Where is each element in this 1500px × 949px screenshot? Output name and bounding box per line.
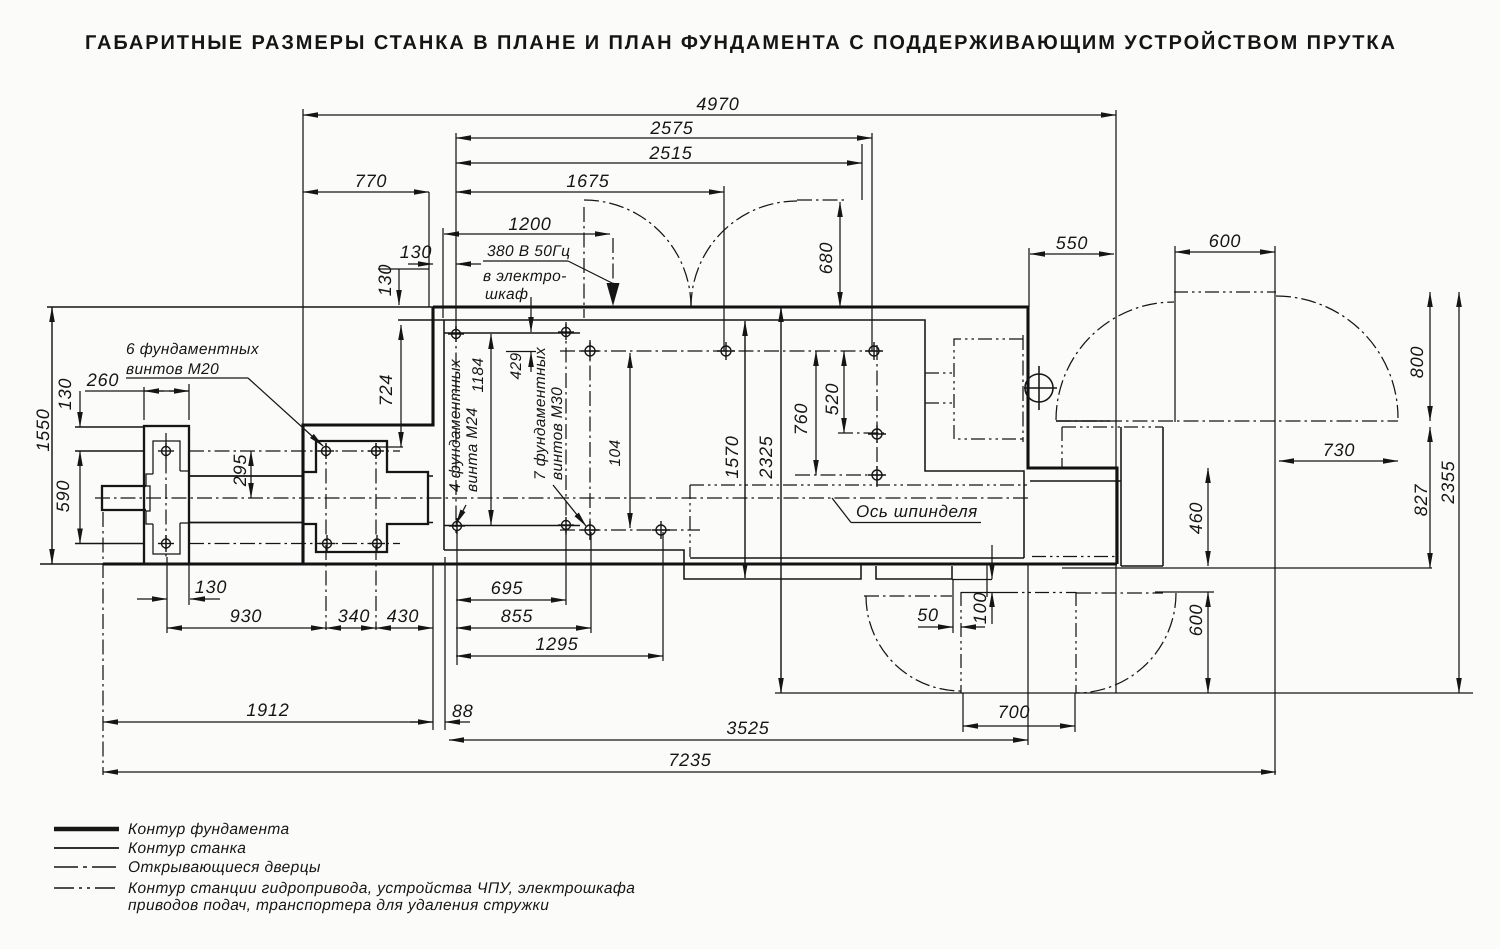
svg-text:Контур станка: Контур станка xyxy=(128,840,246,857)
svg-text:1184: 1184 xyxy=(470,358,487,393)
svg-text:4 фундаментных: 4 фундаментных xyxy=(447,358,464,492)
svg-text:Ось шпинделя: Ось шпинделя xyxy=(856,502,978,521)
svg-text:760: 760 xyxy=(791,403,811,435)
svg-text:1550: 1550 xyxy=(33,408,53,451)
svg-text:в электро-: в электро- xyxy=(483,268,567,285)
svg-text:2355: 2355 xyxy=(1438,460,1458,504)
svg-text:винтов М20: винтов М20 xyxy=(126,361,219,378)
svg-text:1675: 1675 xyxy=(566,171,609,191)
svg-text:695: 695 xyxy=(491,578,524,598)
svg-text:930: 930 xyxy=(230,606,262,626)
svg-text:130: 130 xyxy=(400,242,432,262)
svg-text:380 В 50Гц: 380 В 50Гц xyxy=(487,243,570,260)
svg-text:600: 600 xyxy=(1186,604,1206,636)
svg-text:1570: 1570 xyxy=(722,435,742,478)
svg-text:Открывающиеся дверцы: Открывающиеся дверцы xyxy=(128,859,321,876)
svg-text:1912: 1912 xyxy=(246,700,289,720)
svg-text:130: 130 xyxy=(55,378,75,410)
svg-text:680: 680 xyxy=(816,242,836,274)
svg-text:Контур станции гидропривода,: Контур станции гидропривода, устройства … xyxy=(128,880,635,897)
svg-text:130: 130 xyxy=(195,577,227,597)
svg-text:шкаф: шкаф xyxy=(485,286,528,303)
svg-text:2325: 2325 xyxy=(756,435,776,479)
svg-text:винта М24: винта М24 xyxy=(464,407,481,492)
svg-text:7235: 7235 xyxy=(668,750,711,770)
svg-text:6 фундаментных: 6 фундаментных xyxy=(126,341,260,358)
svg-text:770: 770 xyxy=(355,171,387,191)
svg-text:800: 800 xyxy=(1407,346,1427,378)
svg-text:855: 855 xyxy=(501,606,534,626)
svg-text:730: 730 xyxy=(1323,440,1355,460)
svg-text:7 фундаментных: 7 фундаментных xyxy=(532,346,549,480)
svg-text:ГАБАРИТНЫЕ РАЗМЕРЫ СТАНКА В: ГАБАРИТНЫЕ РАЗМЕРЫ СТАНКА В ПЛАНЕ И ПЛАН… xyxy=(85,30,1395,54)
svg-text:винтов М30: винтов М30 xyxy=(549,387,566,480)
svg-text:1200: 1200 xyxy=(508,214,551,234)
svg-text:Контур фундамента: Контур фундамента xyxy=(128,821,290,838)
svg-text:130: 130 xyxy=(375,264,395,296)
svg-text:460: 460 xyxy=(1186,502,1206,534)
svg-text:700: 700 xyxy=(998,702,1030,722)
svg-text:724: 724 xyxy=(376,374,396,406)
svg-text:295: 295 xyxy=(230,454,250,488)
svg-text:1295: 1295 xyxy=(535,634,578,654)
svg-text:260: 260 xyxy=(86,370,119,390)
svg-text:104: 104 xyxy=(607,439,624,466)
svg-text:100: 100 xyxy=(970,592,990,624)
svg-text:827: 827 xyxy=(1411,484,1431,517)
svg-text:340: 340 xyxy=(338,606,370,626)
svg-text:520: 520 xyxy=(822,383,842,415)
svg-text:550: 550 xyxy=(1056,233,1088,253)
svg-text:590: 590 xyxy=(53,480,73,512)
svg-text:2575: 2575 xyxy=(649,118,693,138)
svg-text:4970: 4970 xyxy=(696,94,739,114)
svg-text:88: 88 xyxy=(452,701,474,721)
svg-text:430: 430 xyxy=(387,606,419,626)
svg-text:2515: 2515 xyxy=(648,143,692,163)
svg-text:3525: 3525 xyxy=(726,718,769,738)
svg-text:приводов подач, транспортера: приводов подач, транспортера для удалени… xyxy=(128,897,549,914)
svg-text:600: 600 xyxy=(1209,231,1241,251)
svg-text:429: 429 xyxy=(508,352,525,379)
svg-text:50: 50 xyxy=(917,605,939,625)
